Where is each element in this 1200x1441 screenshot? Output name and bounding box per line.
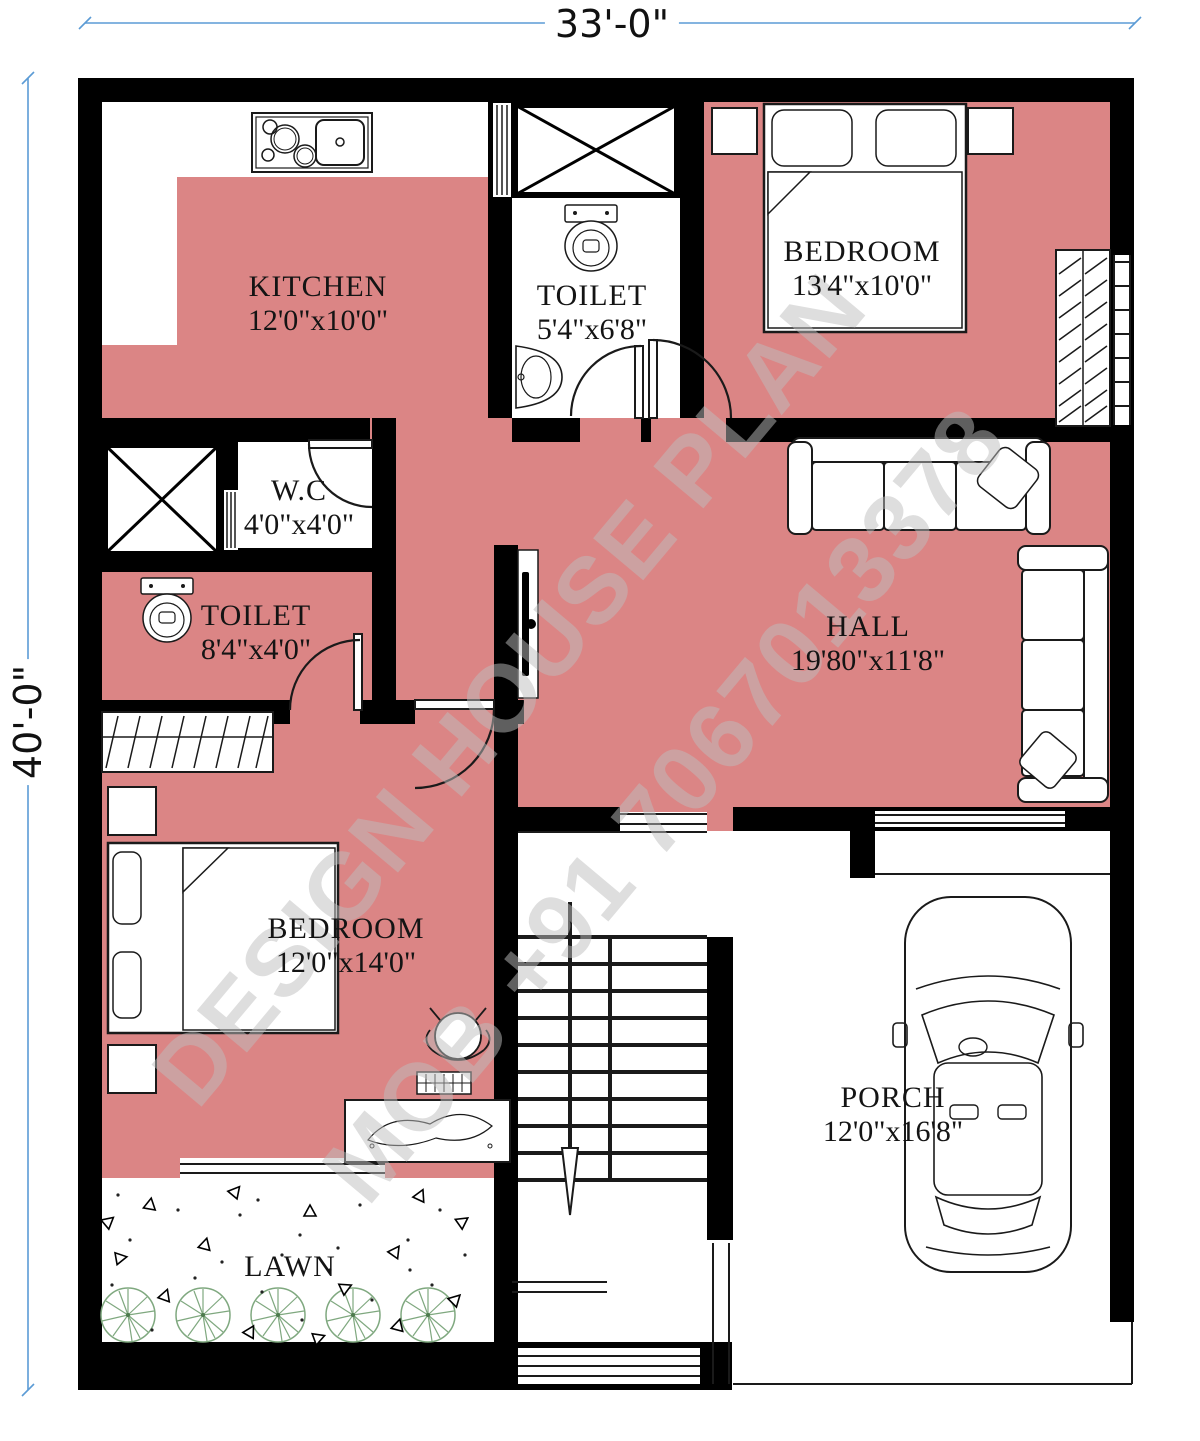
toilet-wc-icon bbox=[565, 205, 617, 271]
room-label-porch: PORCH 12'0"x16'8" bbox=[823, 1081, 963, 1149]
shaft-box-icon bbox=[515, 105, 677, 195]
room-name: TOILET bbox=[537, 279, 647, 313]
room-size: 12'0"x10'0" bbox=[248, 304, 388, 338]
floor-plan-drawing bbox=[0, 0, 1200, 1441]
side-table-icon bbox=[968, 108, 1013, 154]
room-size: 19'80"x11'8" bbox=[791, 644, 945, 678]
room-label-toilet-top: TOILET 5'4"x6'8" bbox=[537, 279, 647, 347]
side-table-icon bbox=[108, 787, 156, 835]
room-size: 13'4"x10'0" bbox=[783, 269, 940, 303]
room-label-lawn: LAWN bbox=[244, 1250, 336, 1284]
wardrobe-icon bbox=[1056, 250, 1110, 426]
room-label-wc: W.C 4'0"x4'0" bbox=[244, 474, 354, 542]
room-name: PORCH bbox=[823, 1081, 963, 1115]
tree-icon bbox=[176, 1288, 230, 1342]
room-name: HALL bbox=[791, 610, 945, 644]
shaft-box-icon bbox=[105, 445, 219, 554]
side-table-icon bbox=[712, 108, 757, 154]
room-name: BEDROOM bbox=[783, 235, 940, 269]
room-size: 5'4"x6'8" bbox=[537, 313, 647, 347]
dimension-height-label: 40'-0" bbox=[6, 659, 50, 785]
room-size: 12'0"x14'0" bbox=[267, 946, 424, 980]
room-name: KITCHEN bbox=[248, 270, 388, 304]
room-label-hall: HALL 19'80"x11'8" bbox=[791, 610, 945, 678]
room-label-bedroom-bottom: BEDROOM 12'0"x14'0" bbox=[267, 912, 424, 980]
dimension-width-label: 33'-0" bbox=[545, 2, 679, 46]
floor-plan-canvas: DESIGN HOUSE PLAN MOB +91 7067013378 33'… bbox=[0, 0, 1200, 1441]
dressing-table-icon bbox=[345, 1100, 510, 1162]
tree-icon bbox=[101, 1288, 155, 1342]
room-name: BEDROOM bbox=[267, 912, 424, 946]
sofa-icon bbox=[788, 438, 1050, 534]
toilet-wc-icon bbox=[141, 578, 193, 642]
tree-icon bbox=[326, 1288, 380, 1342]
desk-chair-icon bbox=[426, 1008, 489, 1060]
sofa-icon bbox=[1017, 546, 1108, 802]
side-table-icon bbox=[108, 1045, 156, 1093]
room-size: 4'0"x4'0" bbox=[244, 508, 354, 542]
wardrobe-icon bbox=[102, 712, 273, 772]
kitchen-sink-stove-icon bbox=[252, 113, 372, 172]
room-label-toilet-left: TOILET 8'4"x4'0" bbox=[201, 599, 311, 667]
room-size: 8'4"x4'0" bbox=[201, 633, 311, 667]
room-label-bedroom-top: BEDROOM 13'4"x10'0" bbox=[783, 235, 940, 303]
room-size: 12'0"x16'8" bbox=[823, 1115, 963, 1149]
room-name: W.C bbox=[244, 474, 354, 508]
room-name: TOILET bbox=[201, 599, 311, 633]
keyboard-icon bbox=[417, 1072, 471, 1094]
tree-icon bbox=[251, 1288, 305, 1342]
tv-unit-icon bbox=[518, 550, 538, 698]
tree-icon bbox=[401, 1288, 455, 1342]
room-label-kitchen: KITCHEN 12'0"x10'0" bbox=[248, 270, 388, 338]
room-name: LAWN bbox=[244, 1250, 336, 1284]
